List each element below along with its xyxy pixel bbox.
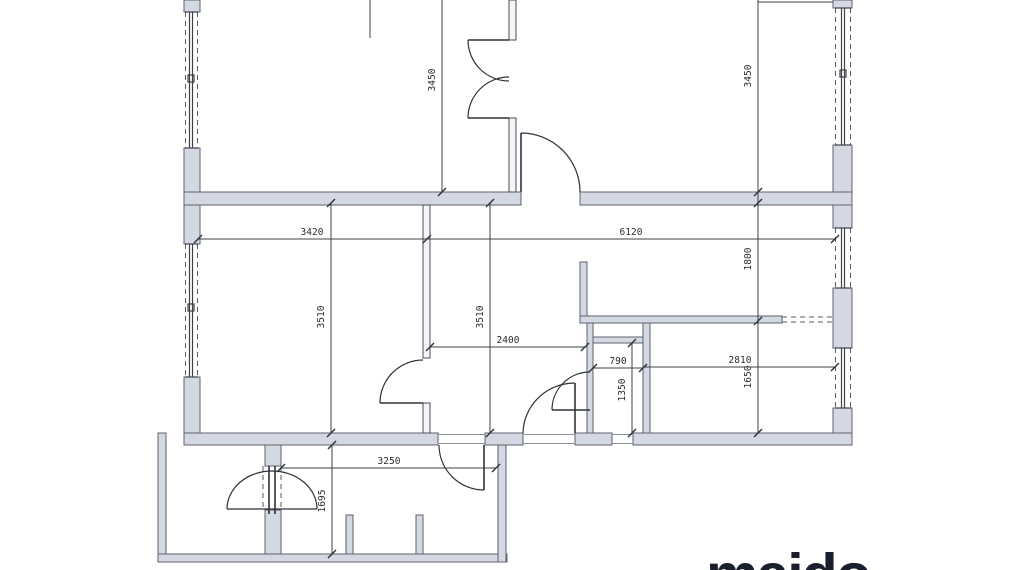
dim-label-wc-width: 790 (609, 356, 626, 367)
dim-label-wc-height: 1350 (617, 378, 628, 401)
window-left-middle (185, 244, 198, 377)
door-center-bottom (523, 383, 575, 433)
dim-label-hall-height: 1800 (743, 247, 754, 270)
floor-plan-canvas: 3450 3450 1800 1650 3420 6120 3510 3510 (0, 0, 1011, 570)
dim-label-mid-center-room-width: 2400 (497, 335, 520, 346)
door-mid-left-room (380, 360, 423, 403)
wall-terrace-left (158, 433, 166, 562)
floor-plan-drawing: 3450 3450 1800 1650 3420 6120 3510 3510 (0, 0, 1011, 570)
dim-label-terrace-height: 1695 (317, 490, 328, 513)
wall-terrace-post-1 (346, 515, 353, 554)
door-double-top-rooms (468, 40, 509, 118)
overhead-wall-dashed (782, 317, 833, 322)
dim-label-top-left-room-height: 3450 (427, 68, 438, 91)
window-left-top (185, 12, 198, 148)
dim-label-mid-center-room-height: 3510 (475, 305, 486, 328)
wall-mid-divider-lower (423, 403, 430, 433)
wall-left-pier-top (184, 0, 200, 12)
wall-corridor-left (184, 192, 521, 205)
dim-label-bottom-right-room-width: 2810 (729, 355, 752, 366)
dim-label-mid-left-room-height: 3510 (316, 305, 327, 328)
door-wc (552, 372, 590, 410)
wall-terrace-pier-lower (265, 510, 281, 554)
wall-bottom-3 (575, 433, 612, 445)
wall-terrace-post-2 (416, 515, 423, 554)
wall-mid-divider-upper (423, 205, 430, 358)
dim-label-bottom-right-room-height: 1650 (743, 365, 754, 388)
dim-label-terrace-width: 3250 (378, 456, 401, 467)
wall-terrace-right (498, 445, 506, 562)
wall-right-pier-3 (833, 288, 852, 348)
wall-bottom-2 (485, 433, 523, 445)
wall-right-pier-top (833, 0, 852, 8)
wall-shaft (590, 337, 650, 343)
window-right-bottom (835, 348, 851, 408)
wall-terrace-pier-upper (265, 445, 281, 466)
wall-top-divider-upper (509, 0, 516, 40)
dim-label-top-right-room-height: 3450 (743, 64, 754, 87)
brand-logo-text: maido (706, 546, 870, 570)
wall-corridor-right (580, 192, 852, 205)
wall-terrace-bottom (158, 554, 507, 562)
wall-top-divider-lower (509, 118, 516, 192)
wall-right-pier-2 (833, 145, 852, 228)
wall-bottom-1 (184, 433, 438, 445)
wall-hall-horizontal (580, 316, 782, 323)
wall-bottom-4 (633, 433, 852, 445)
window-right-top (835, 8, 851, 145)
door-top-right-room (521, 133, 580, 192)
dim-label-hall-width: 6120 (620, 227, 643, 238)
wall-wc-right (643, 323, 650, 433)
dim-label-mid-left-room-width: 3420 (301, 227, 324, 238)
wall-wc-left (587, 323, 593, 433)
wall-hall-vertical (580, 262, 587, 316)
door-terrace-swing (227, 466, 317, 514)
